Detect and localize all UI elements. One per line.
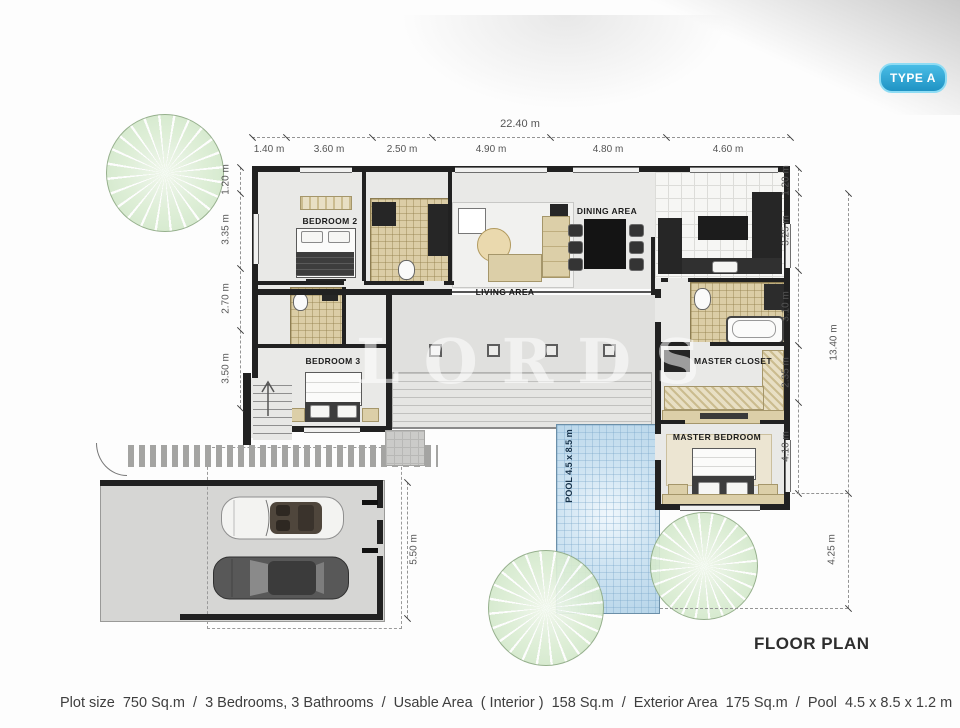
partition bbox=[448, 172, 452, 285]
vanity bbox=[428, 204, 448, 256]
dim-top-seg: 4.90 m bbox=[461, 144, 521, 155]
window bbox=[680, 505, 760, 511]
wall-left-wing-east bbox=[386, 295, 392, 426]
bedroom3-bed bbox=[305, 372, 362, 406]
closet-console-rail bbox=[700, 413, 748, 419]
window bbox=[253, 214, 259, 264]
pool-label: POOL 4.5 x 8.5 m bbox=[564, 406, 574, 526]
bedroom2-wardrobe bbox=[300, 196, 352, 210]
bedroom3-pillow bbox=[310, 405, 330, 418]
sofa-seat bbox=[488, 254, 542, 282]
tree bbox=[650, 512, 758, 620]
kitchen-sink bbox=[712, 261, 738, 273]
dim-right: 4.10 m bbox=[781, 417, 792, 477]
dim-left: 3.50 m bbox=[221, 339, 232, 399]
terrace-deck bbox=[392, 372, 652, 428]
dim-right-lower: 4.25 m bbox=[827, 520, 838, 580]
dim-line-top bbox=[252, 137, 790, 138]
dim-right-total: 13.40 m bbox=[829, 313, 840, 373]
scan-shadow-center bbox=[400, 15, 730, 110]
tree bbox=[106, 114, 224, 232]
kitchen-appliances bbox=[658, 218, 682, 274]
garage-wall bbox=[377, 556, 383, 620]
living-label: LIVING AREA bbox=[476, 287, 535, 297]
toilet bbox=[694, 288, 711, 310]
garage-wall bbox=[377, 520, 383, 544]
dim-right: 3.25 m bbox=[781, 201, 792, 261]
garage-door-jamb bbox=[362, 548, 378, 553]
dining-chair bbox=[568, 258, 583, 271]
wall-entry bbox=[243, 373, 251, 445]
door-opening bbox=[655, 298, 661, 322]
bedroom2-label: BEDROOM 2 bbox=[302, 216, 357, 226]
dining-chair bbox=[568, 224, 583, 237]
window bbox=[573, 167, 639, 173]
toilet bbox=[293, 293, 308, 311]
sofa bbox=[542, 216, 570, 278]
footer-specs: Plot size 750 Sq.m / 3 Bedrooms, 3 Bathr… bbox=[60, 695, 952, 711]
partition bbox=[661, 420, 685, 424]
dining-chair bbox=[568, 241, 583, 254]
garage-door-jamb bbox=[362, 500, 378, 505]
bedroom3-pillow bbox=[337, 405, 357, 418]
partition bbox=[258, 344, 392, 348]
shower bbox=[372, 202, 396, 226]
dim-connector bbox=[792, 493, 848, 494]
terrace-column bbox=[545, 344, 558, 357]
tree bbox=[488, 550, 604, 666]
dim-top-seg: 2.50 m bbox=[372, 144, 432, 155]
dim-left: 3.35 m bbox=[221, 200, 232, 260]
door-opening bbox=[655, 434, 661, 460]
dim-garage: 5.50 m bbox=[409, 520, 420, 580]
window bbox=[455, 167, 547, 173]
dim-line-right-outer bbox=[848, 193, 849, 608]
bathtub-basin bbox=[732, 320, 776, 338]
window bbox=[304, 427, 360, 433]
stairs-up-arrow bbox=[258, 376, 278, 420]
dining-label: DINING AREA bbox=[577, 206, 637, 216]
garage-wall-bottom bbox=[180, 614, 383, 620]
garage-wall-top bbox=[100, 480, 383, 486]
dim-top-total: 22.40 m bbox=[465, 118, 575, 130]
bedroom2-pillow bbox=[328, 231, 350, 243]
type-badge: TYPE A bbox=[879, 63, 947, 93]
dim-top-seg: 1.40 m bbox=[239, 144, 299, 155]
door-opening bbox=[424, 281, 444, 285]
car-convertible bbox=[220, 492, 345, 544]
type-badge-label: TYPE A bbox=[890, 71, 936, 85]
closet-dresser bbox=[664, 350, 690, 372]
dim-left: 2.70 m bbox=[221, 269, 232, 329]
armchair bbox=[458, 208, 486, 234]
window bbox=[690, 167, 778, 173]
floor-plan-title: FLOOR PLAN bbox=[754, 634, 870, 654]
closet-wardrobe bbox=[664, 386, 764, 410]
partition bbox=[661, 342, 784, 346]
dim-top-seg: 4.60 m bbox=[698, 144, 758, 155]
partition bbox=[651, 237, 655, 295]
door-opening bbox=[668, 278, 688, 282]
kitchen-island bbox=[698, 216, 748, 240]
master-closet-label: MASTER CLOSET bbox=[694, 356, 772, 366]
gate-swing-arc bbox=[96, 443, 127, 476]
partition bbox=[362, 172, 366, 282]
partition bbox=[342, 287, 346, 346]
bedroom2-blanket bbox=[296, 252, 354, 276]
dining-chair bbox=[629, 258, 644, 271]
terrace-column bbox=[429, 344, 442, 357]
terrace-column bbox=[487, 344, 500, 357]
dim-top-seg: 3.60 m bbox=[299, 144, 359, 155]
terrace-column bbox=[603, 344, 616, 357]
dim-connector bbox=[660, 608, 848, 609]
dim-top-seg: 4.80 m bbox=[578, 144, 638, 155]
dim-line-right-inner bbox=[798, 168, 799, 493]
toilet bbox=[398, 260, 415, 280]
paving-square bbox=[385, 430, 425, 466]
dim-line-left bbox=[240, 167, 241, 408]
nightstand bbox=[362, 408, 379, 422]
dim-right: 3.10 m bbox=[781, 277, 792, 337]
bedroom3-label: BEDROOM 3 bbox=[305, 356, 360, 366]
dining-chair bbox=[629, 224, 644, 237]
window bbox=[300, 167, 352, 173]
master-bedroom-label: MASTER BEDROOM bbox=[673, 432, 761, 442]
door-opening bbox=[344, 281, 364, 285]
floor-plan-canvas: TYPE A POOL 4.5 x 8.5 m bbox=[0, 0, 960, 728]
dining-table bbox=[584, 219, 626, 269]
bedroom2-pillow bbox=[301, 231, 323, 243]
terrace-edge bbox=[392, 427, 556, 429]
car-sedan bbox=[212, 552, 350, 604]
dim-right: 2.35 m bbox=[781, 343, 792, 403]
door-opening bbox=[690, 342, 710, 346]
dining-chair bbox=[629, 241, 644, 254]
wall-living-south bbox=[252, 289, 452, 295]
